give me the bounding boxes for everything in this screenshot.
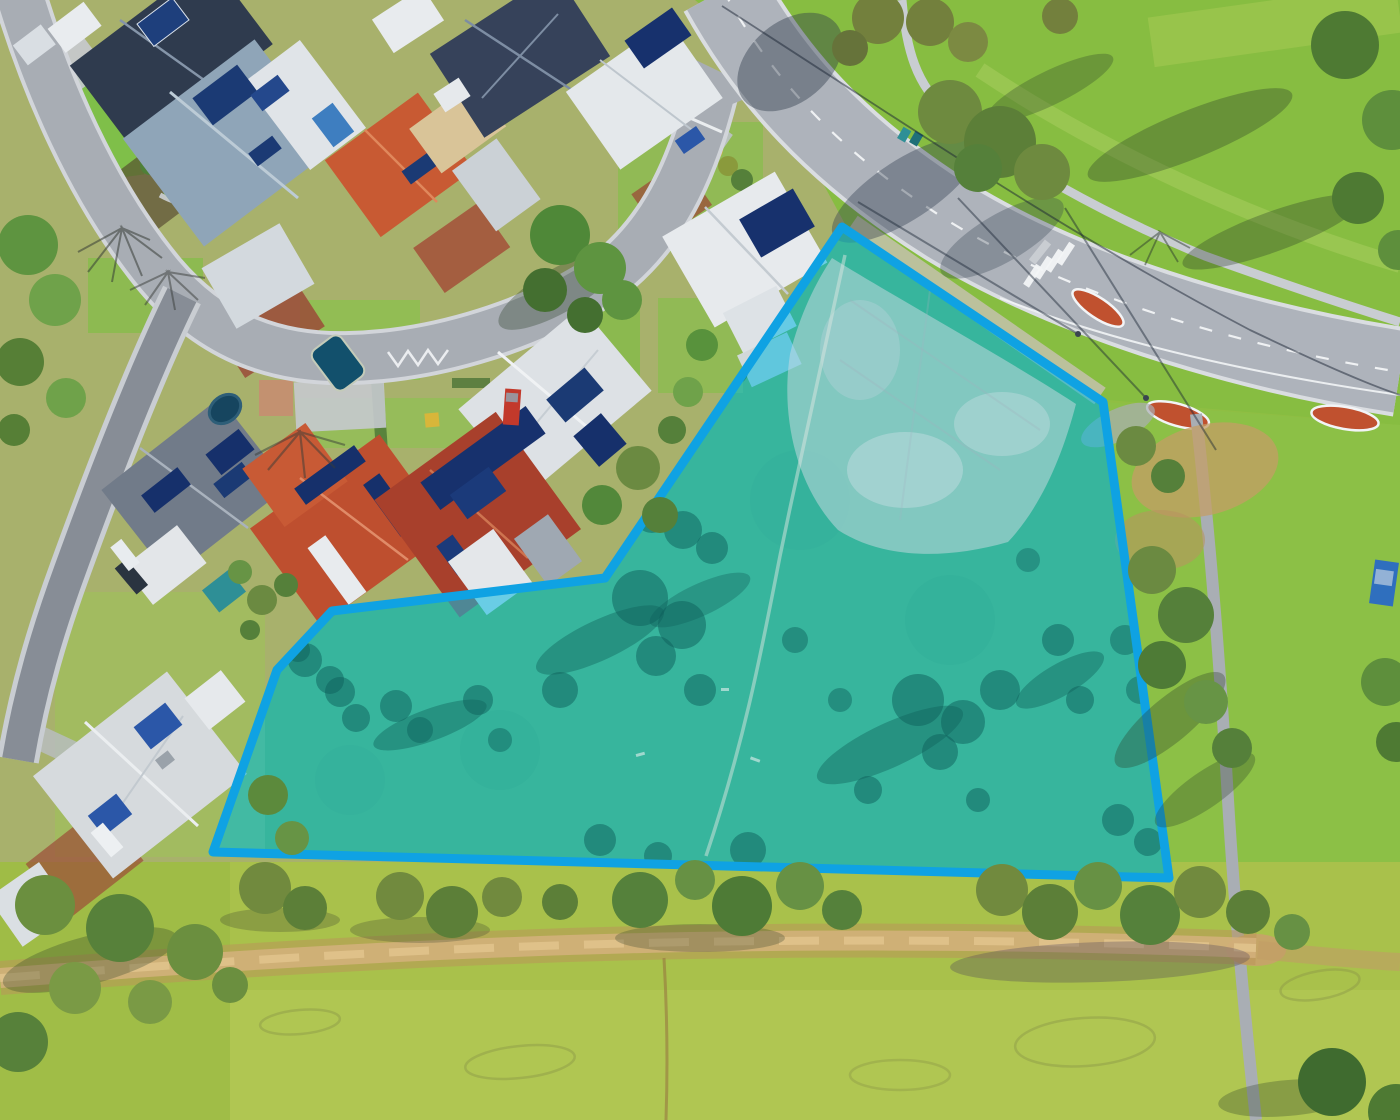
parcel-tree [380,690,412,722]
parcel-tree [922,734,958,770]
tree [1151,459,1185,493]
parcel-tree [1016,548,1040,572]
tree [1022,884,1078,940]
tree [675,860,715,900]
parcel-tree [684,674,716,706]
tree [1158,587,1214,643]
tree [228,560,252,584]
parcel-tree [1102,804,1134,836]
tree [612,872,668,928]
tree [1128,546,1176,594]
tree [46,378,86,418]
parcel-tree [636,636,676,676]
tree [240,620,260,640]
tree [1116,426,1156,466]
parcel-tree [342,704,370,732]
tree [1274,914,1310,950]
tree [658,416,686,444]
tree [686,329,718,361]
tree [832,30,868,66]
aerial-photo-canvas [0,0,1400,1120]
tree [642,497,678,533]
power-pole [1143,395,1149,401]
cubby-yellow [424,412,439,427]
tree [616,446,660,490]
tree [1311,11,1379,79]
tree [376,872,424,920]
parcel-tree [696,532,728,564]
parcel-tree [892,674,944,726]
tree [1138,641,1186,689]
tree [482,877,522,917]
tree [86,894,154,962]
bare-patch-blob [954,392,1050,456]
dirt-spur [1258,950,1400,962]
tree [247,585,277,615]
parcel-tree [1066,686,1094,714]
parcel-tree [584,824,616,856]
parcel-tree [1042,624,1074,656]
tree [29,274,81,326]
tree [274,573,298,597]
tree [167,924,223,980]
tree [1298,1048,1366,1116]
tree [976,864,1028,916]
tree [0,215,58,275]
power-pole [1075,331,1081,337]
tree [49,962,101,1014]
parcel-tree [854,776,882,804]
car-roof-glass [1374,569,1394,586]
tree [523,268,567,312]
tree [712,876,772,936]
tree [1184,680,1228,724]
tree [248,775,288,815]
tree [948,22,988,62]
parcel-tree [407,717,433,743]
tree [1174,866,1226,918]
tree [426,886,478,938]
tree [906,0,954,46]
tree [1120,885,1180,945]
tree [582,485,622,525]
car-windshield [506,393,519,403]
tree [542,884,578,920]
bare-patch-blob [847,432,963,508]
parcel-tree [463,685,493,715]
parcel-tree [488,728,512,752]
tree [776,862,824,910]
tree [1332,172,1384,224]
tree [15,875,75,935]
aerial-photo [0,0,1400,1120]
parcel-tree [325,677,355,707]
tree [1074,862,1122,910]
parcel-tree [966,788,990,812]
tree [954,144,1002,192]
tree [673,377,703,407]
tree [567,297,603,333]
tree [1014,144,1070,200]
tree [128,980,172,1024]
tree [1212,728,1252,768]
tree [283,886,327,930]
tree [1226,890,1270,934]
parcel-tree [782,627,808,653]
parcel-tree [828,688,852,712]
tree [212,967,248,1003]
parcel-tree [542,672,578,708]
paving-terracotta [259,380,293,416]
fallen-log [721,688,729,691]
tree [275,821,309,855]
hedge [452,378,490,388]
parcel-tree [980,670,1020,710]
tree [602,280,642,320]
parcel-tree [1134,828,1162,856]
tree [822,890,862,930]
